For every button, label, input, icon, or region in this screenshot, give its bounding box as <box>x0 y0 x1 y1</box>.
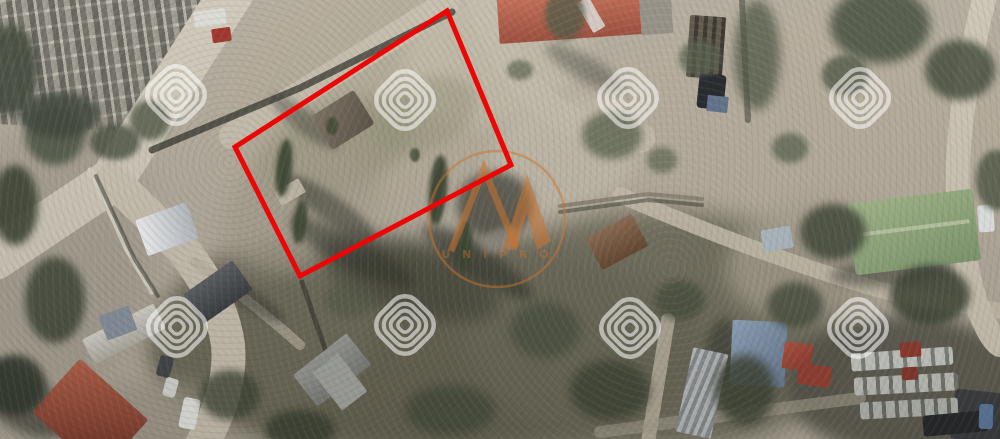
diamond-ring <box>396 316 414 334</box>
diamond-ring <box>142 292 213 363</box>
boundary-group <box>235 11 511 276</box>
diamond-watermark-icon <box>142 292 213 363</box>
aerial-photo: U N I P R O <box>0 0 1000 439</box>
diamond-ring <box>370 290 441 361</box>
diamond-ring <box>370 65 441 136</box>
property-boundary-outline <box>235 11 511 276</box>
annotation-overlay: U N I P R O <box>0 0 1000 439</box>
logo-triangle-right-icon <box>503 174 551 250</box>
diamond-watermark-icon <box>823 293 894 364</box>
diamond-ring <box>849 319 867 337</box>
diamond-watermark-icon <box>370 290 441 361</box>
diamond-ring <box>593 63 664 134</box>
diamond-ring <box>595 293 666 364</box>
diamond-watermark-icon <box>595 293 666 364</box>
diamond-ring <box>825 63 896 134</box>
diamond-watermark-icon <box>370 65 441 136</box>
diamond-watermark-icon <box>825 63 896 134</box>
diamond-watermark-icon <box>141 60 212 131</box>
diamond-ring <box>619 89 637 107</box>
diamond-ring <box>823 293 894 364</box>
diamond-ring <box>621 319 639 337</box>
diamond-ring <box>168 318 186 336</box>
diamond-ring <box>396 91 414 109</box>
diamond-watermark-icon <box>593 63 664 134</box>
diamond-ring <box>167 86 185 104</box>
diamond-ring <box>851 89 869 107</box>
logo-watermark-text: U N I P R O <box>441 248 552 261</box>
diamond-ring <box>141 60 212 131</box>
